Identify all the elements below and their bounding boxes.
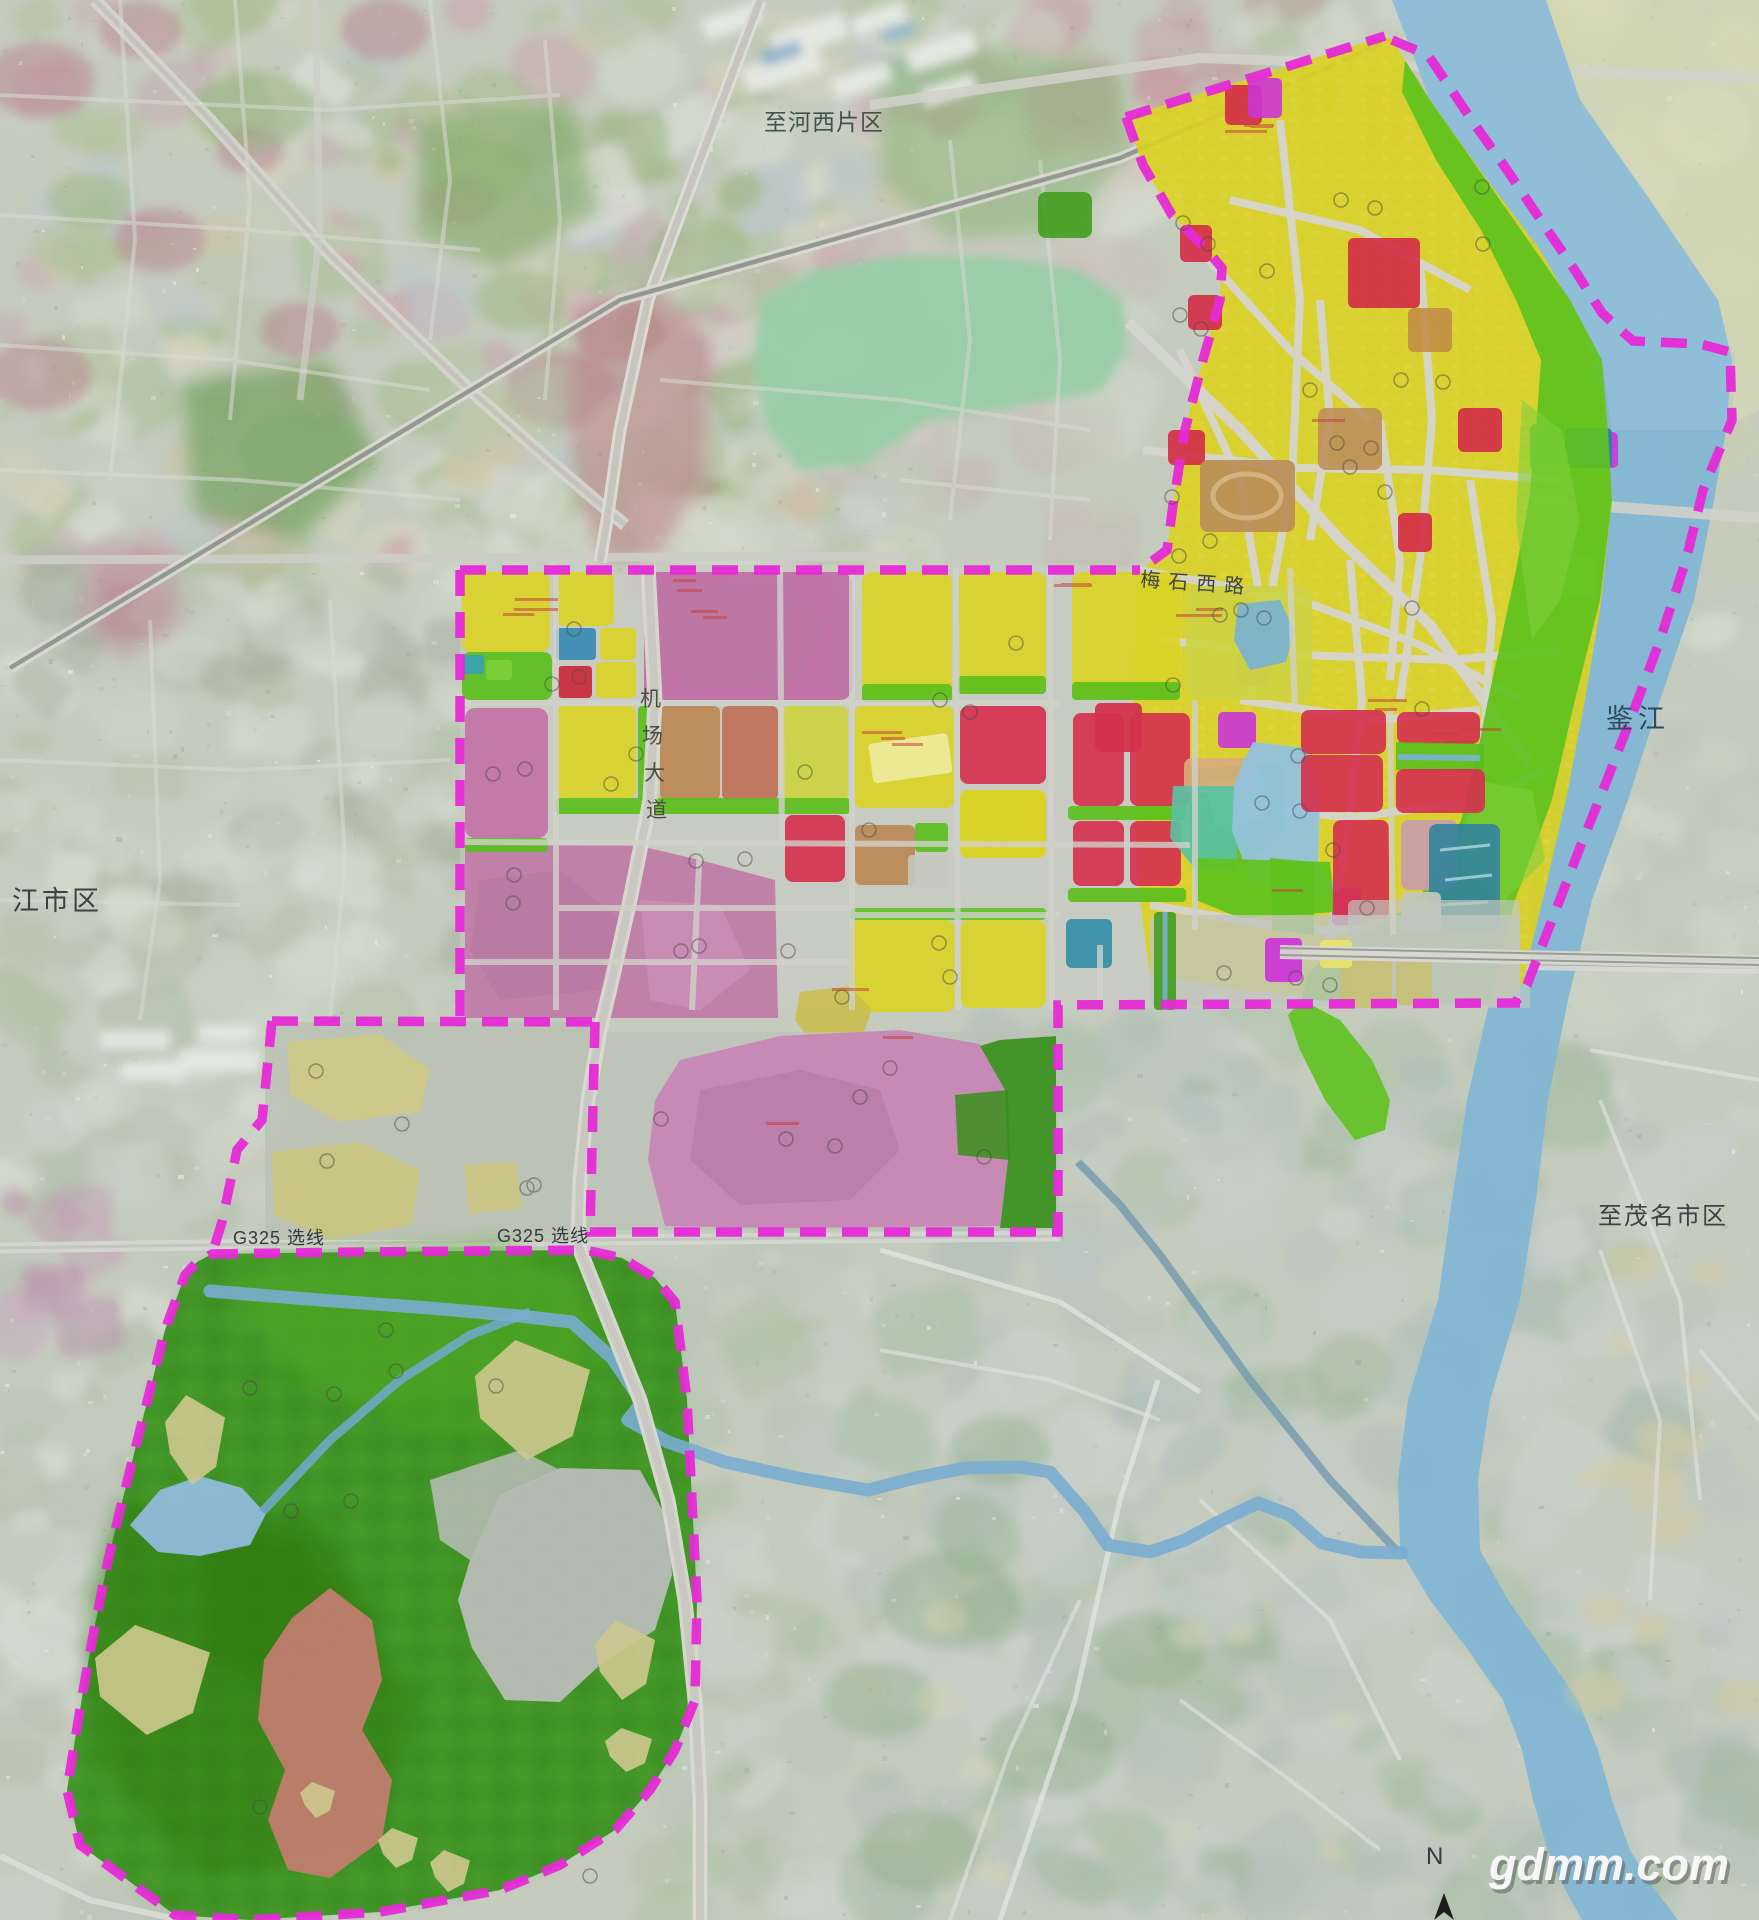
svg-text:江市区: 江市区	[12, 886, 102, 916]
svg-text:G325 选线: G325 选线	[497, 1226, 589, 1246]
svg-text:鉴江: 鉴江	[1606, 704, 1670, 734]
svg-text:G325 选线: G325 选线	[233, 1228, 325, 1248]
svg-text:至河西片区: 至河西片区	[764, 109, 884, 135]
svg-text:gdmm.com: gdmm.com	[1488, 1839, 1729, 1890]
svg-text:N: N	[1426, 1843, 1443, 1870]
svg-text:至茂名市区: 至茂名市区	[1598, 1203, 1728, 1230]
